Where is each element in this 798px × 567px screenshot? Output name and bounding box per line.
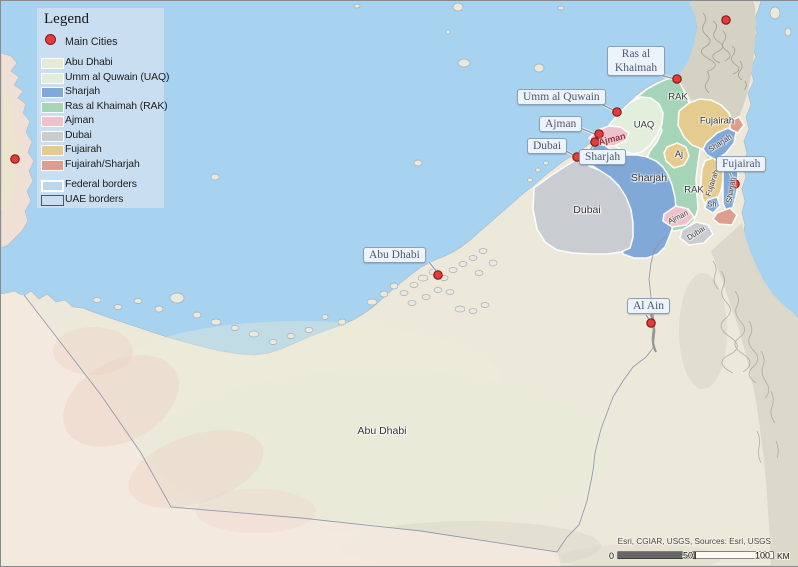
legend-label-uae-borders: UAE borders — [65, 194, 123, 205]
callout-ajman: Ajman — [539, 116, 582, 132]
legend-row-fujairah: Fujairah — [37, 144, 164, 156]
callout-fujairah: Fujairah — [716, 156, 766, 172]
city-dot-doha[interactable] — [11, 155, 19, 163]
swatch-fujairah — [41, 145, 64, 156]
swatch-uaq — [41, 73, 64, 84]
legend-label-fujairah-sharjah: Fujairah/Sharjah — [65, 159, 140, 170]
city-dot-khasab[interactable] — [722, 16, 730, 24]
callout-ras-al-khaimah: Ras al Khaimah — [607, 46, 665, 76]
attribution-text: Esri, CGIAR, USGS, Sources: Esri, USGS — [618, 537, 772, 546]
swatch-ajman — [41, 116, 64, 127]
legend-label-uaq: Umm al Quwain (UAQ) — [65, 72, 169, 83]
label-rak-region-north: RAK — [668, 92, 688, 103]
label-rak-region-south: RAK — [684, 185, 704, 196]
city-dot-abu-dhabi[interactable] — [434, 271, 442, 279]
legend-label-fujairah: Fujairah — [65, 144, 102, 155]
legend-row-uae-borders: UAE borders — [37, 194, 164, 206]
legend-row-fujairah-sharjah: Fujairah/Sharjah — [37, 159, 164, 171]
legend-row-sharjah: Sharjah — [37, 86, 164, 98]
scalebar-label-100: 100 — [755, 551, 770, 561]
label-aj-region: Aj — [675, 149, 683, 159]
city-dot-umm-al-quwain[interactable] — [613, 108, 621, 116]
label-sh-patch: Sh — [707, 200, 716, 209]
legend-row-ajman: Ajman — [37, 115, 164, 127]
swatch-abu-dhabi — [41, 58, 64, 69]
scalebar-label-0: 0 — [609, 551, 614, 561]
legend-label-federal-borders: Federal borders — [65, 179, 137, 190]
legend-label-abu-dhabi: Abu Dhabi — [65, 57, 113, 68]
label-fujairah-region: Fujairah — [700, 116, 734, 127]
city-dot-ras-al-khaimah[interactable] — [673, 75, 681, 83]
swatch-fujairah-sharjah — [41, 160, 64, 171]
scalebar-label-50: 50 — [683, 551, 693, 561]
legend-row-main-cities: Main Cities — [37, 36, 164, 48]
swatch-federal-borders — [41, 180, 64, 192]
legend-row-uaq: Umm al Quwain (UAQ) — [37, 72, 164, 84]
legend-main-cities-label: Main Cities — [65, 36, 117, 48]
callout-dubai: Dubai — [527, 138, 567, 154]
scalebar-unit: KM — [777, 551, 790, 561]
legend-row-dubai: Dubai — [37, 130, 164, 142]
legend-row-abu-dhabi: Abu Dhabi — [37, 57, 164, 69]
label-sharjah-region: Sharjah — [631, 172, 667, 184]
legend-title: Legend — [44, 11, 89, 28]
map-viewport: Esri, CGIAR, USGS, Sources: Esri, USGS 0… — [0, 0, 798, 567]
callout-abu-dhabi: Abu Dhabi — [363, 247, 426, 263]
callout-sharjah: Sharjah — [579, 149, 626, 165]
callout-al-ain: Al Ain — [627, 298, 670, 314]
swatch-rak — [41, 102, 64, 113]
label-abu-dhabi-region: Abu Dhabi — [357, 425, 406, 437]
city-dot-al-ain[interactable] — [647, 319, 655, 327]
swatch-sharjah — [41, 87, 64, 98]
legend-label-ajman: Ajman — [65, 115, 94, 126]
legend-label-sharjah: Sharjah — [65, 86, 100, 97]
legend-label-dubai: Dubai — [65, 130, 92, 141]
label-uaq-region: UAQ — [634, 120, 655, 131]
callout-umm-al-quwain: Umm al Quwain — [517, 89, 606, 105]
swatch-dubai — [41, 131, 64, 142]
label-dubai-region: Dubai — [573, 204, 600, 216]
legend-row-federal-borders: Federal borders — [37, 179, 164, 191]
main-cities-marker-icon — [45, 34, 56, 45]
legend-panel: Legend Main Cities Abu Dhabi Umm al Quwa… — [37, 8, 164, 208]
legend-row-rak: Ras al Khaimah (RAK) — [37, 101, 164, 113]
legend-label-rak: Ras al Khaimah (RAK) — [65, 101, 168, 112]
swatch-uae-borders — [41, 195, 64, 206]
